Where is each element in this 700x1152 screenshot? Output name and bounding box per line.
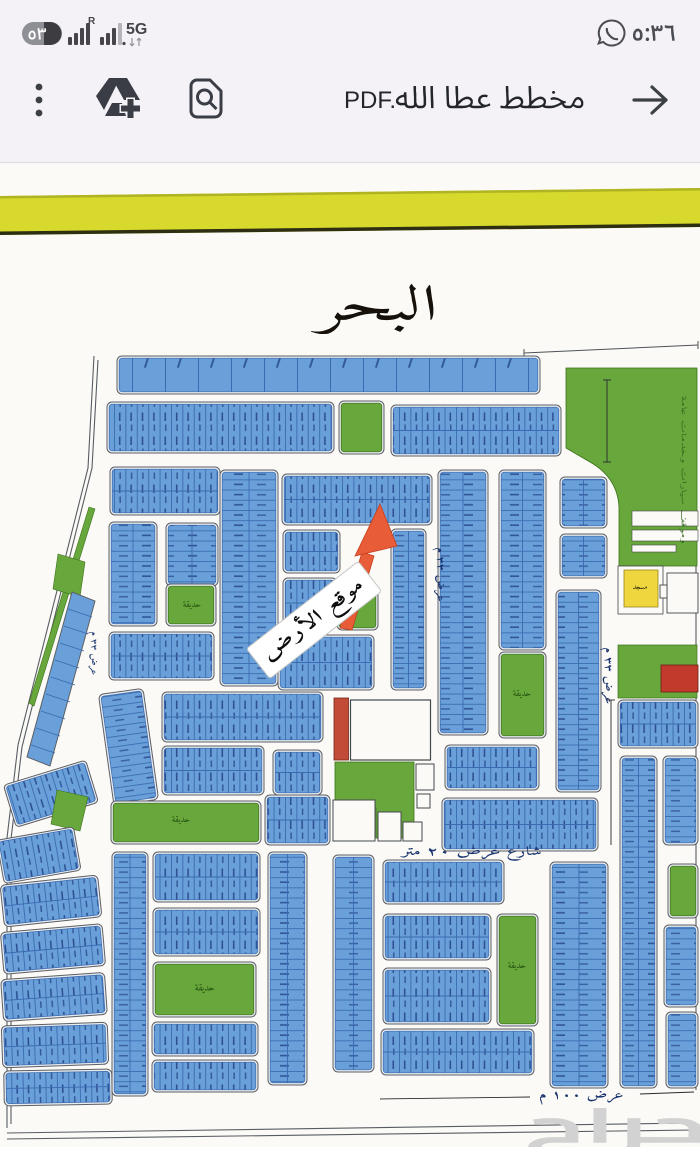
svg-text:R: R bbox=[88, 16, 96, 27]
svg-text:5G: 5G bbox=[126, 21, 147, 38]
svg-text:PDF.: PDF. bbox=[344, 87, 396, 114]
